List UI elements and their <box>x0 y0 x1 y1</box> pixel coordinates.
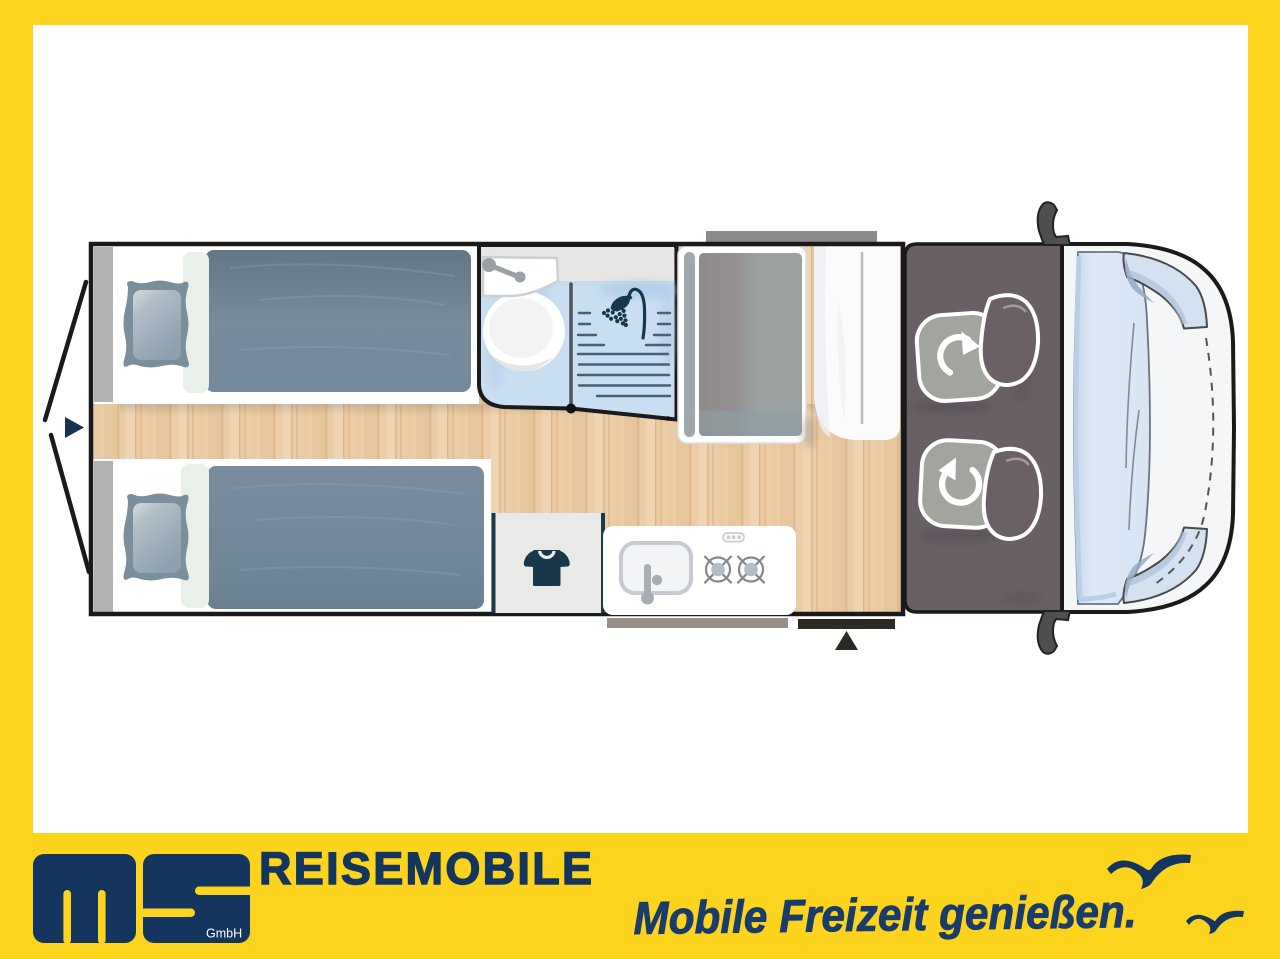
svg-text:GmbH: GmbH <box>206 927 242 941</box>
